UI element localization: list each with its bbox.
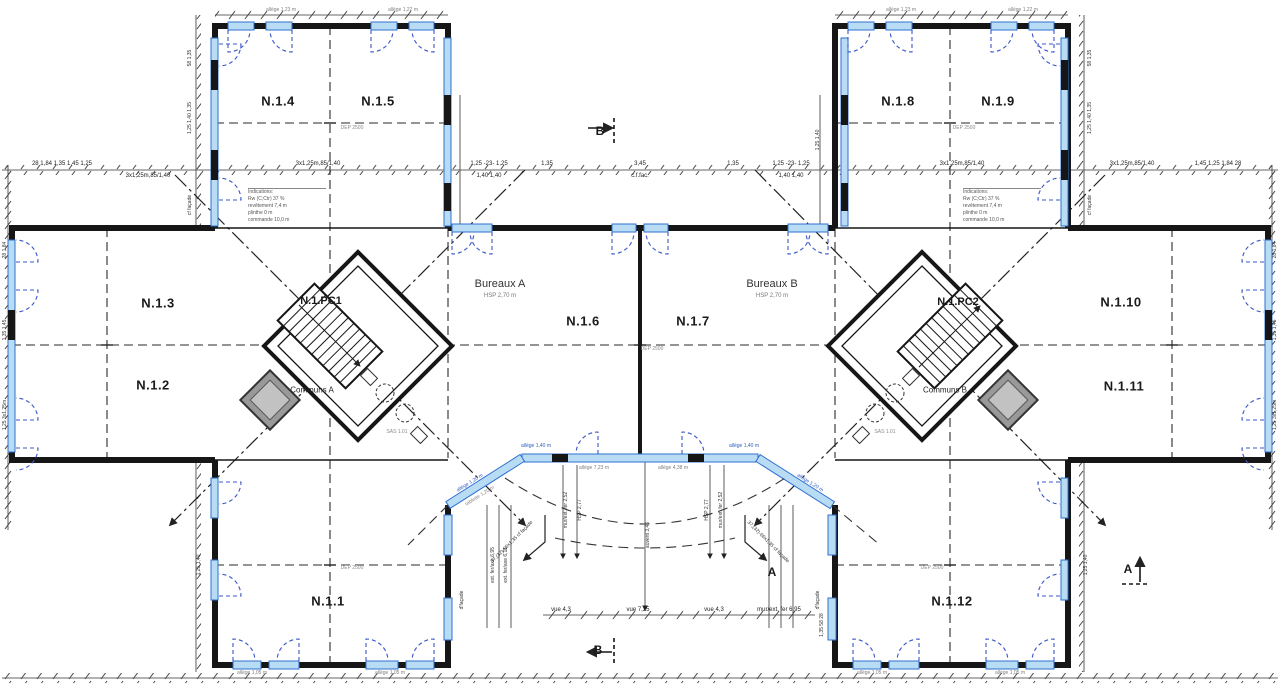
allege-note: allège 4,38 m (658, 465, 688, 471)
dim-text: 3x1,25m,85/1,40 (940, 161, 985, 167)
dim-text-v: HSP 2,77 (704, 499, 710, 520)
finish-table-line: revêtement 7,4 m (963, 203, 1041, 210)
allege-note: allège 1,22 m (1008, 7, 1038, 13)
dim-text: 1,40 1,40 (476, 173, 501, 179)
dim-text-v: 58 1,35 (1087, 50, 1093, 67)
allege-note: allège 1,05 m (375, 670, 405, 676)
tablette-note: tablette 1,20 m (464, 485, 495, 508)
labels-overlay: N.1.4 N.1.5 N.1.8 N.1.9 N.1.3 N.1.2 N.1.… (0, 0, 1280, 694)
room-label-n15: N.1.5 (361, 94, 395, 109)
finish-table-line: commande 10,0 m (248, 217, 326, 224)
room-label-n14: N.1.4 (261, 94, 295, 109)
finish-table-line: Indications: (963, 189, 1041, 196)
dim-text: 1,45 1,25 1,84 28 (1195, 161, 1242, 167)
allege-note: allège 1,05 m (857, 670, 887, 676)
allege-note-blue: allège 1,40 m (521, 443, 551, 449)
dim-text-v: 1,25 1,40 (1083, 555, 1089, 576)
dim-text: mur/ext. fer 6,95 (757, 607, 801, 613)
zone-sub-bureaux-b: HSP 2,70 m (756, 293, 788, 299)
section-marker-a-right: A (1124, 562, 1133, 576)
allege-note: allège 7,23 m (579, 465, 609, 471)
zone-label-bureaux-b: Bureaux B (746, 278, 797, 290)
finish-table-left: Indications: Rw (C;Ctr) 37 % revêtement … (248, 188, 326, 224)
finish-table-line: Rw (C;Ctr) 37 % (963, 196, 1041, 203)
dim-text: 3x1,25m,85/1,40 (126, 173, 171, 179)
dim-text-v: d'façade (815, 591, 821, 610)
dim-text-v: 28 1,84 (2, 242, 8, 259)
allege-note: allège 1,05 m (995, 670, 1025, 676)
allege-note-blue: allège 1,40 m (729, 443, 759, 449)
dim-text-v: mur/ext. fer 2,52 (718, 492, 724, 528)
dim-text-v: 1,25 1,40 1,35 (1087, 102, 1093, 134)
room-label-n12: N.1.2 (136, 378, 170, 393)
room-label-n13: N.1.3 (141, 296, 175, 311)
zone-label-bureaux-a: Bureaux A (475, 278, 526, 290)
dim-text: c.f.fac. (631, 173, 649, 179)
dim-text-v: 58 1,35 (187, 50, 193, 67)
dim-text: vue 7,25 (626, 607, 649, 613)
dim-text: 1,25 -23- 1,25 (772, 161, 809, 167)
sas-label-right: SAS 1.01 (874, 429, 895, 435)
dim-text: 3x1,25m,85/1,40 (1110, 161, 1155, 167)
dim-text-v: d'façade (459, 591, 465, 610)
dim-text-diag: 37,(32)-66x1,35 cf façade (490, 520, 535, 565)
dim-text: 1,35 (727, 161, 739, 167)
dim-text-v: mur/ext. fer 2,52 (563, 492, 569, 528)
dep-note: DEP 2500 (341, 565, 364, 571)
room-label-n16: N.1.6 (566, 314, 600, 329)
finish-table-line: Rw (C;Ctr) 37 % (248, 196, 326, 203)
finish-table-right: Indications: Rw (C;Ctr) 37 % revêtement … (963, 188, 1041, 224)
dim-text-v: ext. fer/axe 6,95 (490, 547, 496, 583)
dim-text-v: 1,25 1,40 (815, 130, 821, 151)
dim-text-v: 1,35 58 28 (819, 613, 825, 637)
dim-text-v: cf façade (187, 195, 193, 215)
dim-text-v: cf façade (1087, 195, 1093, 215)
dim-text-v: 28 1,84 (1272, 242, 1278, 259)
allege-note-blue: allège 1,20 m (456, 472, 485, 493)
section-marker-a-inner: A (768, 565, 777, 579)
dep-note: DEP 2500 (341, 125, 364, 131)
section-marker-b-top: B (596, 124, 605, 138)
communs-b-label: Communs B (923, 386, 967, 395)
dim-text-v: auvent 3,46 (645, 522, 651, 548)
dim-text-v: 1,35 1,45 (1272, 320, 1278, 341)
dim-text: 1,40 1,40 (778, 173, 803, 179)
finish-table-line: plinthe 0 m (248, 210, 326, 217)
dim-text: 3x1,25m,85/1,40 (296, 161, 341, 167)
dim-text-diag: 37,(32)-66x1,35 cf façade (746, 520, 791, 565)
core-label-pc1: N.1.PC1 (300, 295, 342, 307)
room-label-n11: N.1.1 (311, 594, 345, 609)
dep-note: DEP 2500 (641, 346, 664, 352)
dim-text: 28 1,84 1,35 1,45 1,25 (32, 161, 92, 167)
dim-text: 3,45 (634, 161, 646, 167)
dim-text-v: 1,25 3x1,25m (1272, 400, 1278, 430)
floor-plan: N.1.4 N.1.5 N.1.8 N.1.9 N.1.3 N.1.2 N.1.… (0, 0, 1280, 694)
communs-a-label: Communs A (290, 386, 334, 395)
core-label-pc2: N.1.PC2 (937, 296, 979, 308)
dim-text-v: HSP 2,77 (577, 499, 583, 520)
dim-text: vue 4,3 (704, 607, 724, 613)
section-marker-b-bottom: B (594, 643, 603, 657)
allege-note: allège 1,22 m (388, 7, 418, 13)
room-label-n17: N.1.7 (676, 314, 710, 329)
finish-table-line: plinthe 0 m (963, 210, 1041, 217)
finish-table-line: Indications: (248, 189, 326, 196)
finish-table-line: revêtement 7,4 m (248, 203, 326, 210)
dim-text-v: 1,25 1,40 (196, 555, 202, 576)
allege-note: allège 1,23 m (886, 7, 916, 13)
dim-text-v: 1,35 1,45 (2, 320, 8, 341)
allege-note: allège 1,23 m (266, 7, 296, 13)
dim-text: 1,35 (541, 161, 553, 167)
dim-text-v: 1,25 3x1,25m (2, 400, 8, 430)
dim-text: 1,25 -23- 1,25 (470, 161, 507, 167)
allege-note: allège 1,05 m (237, 670, 267, 676)
dim-text-v: 1,25 1,40 1,35 (187, 102, 193, 134)
allege-note-blue: allège 1,20 m (796, 472, 825, 493)
dim-text: vue 4,3 (551, 607, 571, 613)
zone-sub-bureaux-a: HSP 2,70 m (484, 293, 516, 299)
room-label-n112: N.1.12 (931, 594, 972, 609)
dep-note: DEP 2500 (953, 125, 976, 131)
room-label-n18: N.1.8 (881, 94, 915, 109)
dep-note: DEP 2500 (921, 565, 944, 571)
sas-label-left: SAS 1.01 (386, 429, 407, 435)
room-label-n19: N.1.9 (981, 94, 1015, 109)
room-label-n110: N.1.10 (1100, 295, 1141, 310)
room-label-n111: N.1.11 (1104, 379, 1145, 394)
finish-table-line: commande 10,0 m (963, 217, 1041, 224)
